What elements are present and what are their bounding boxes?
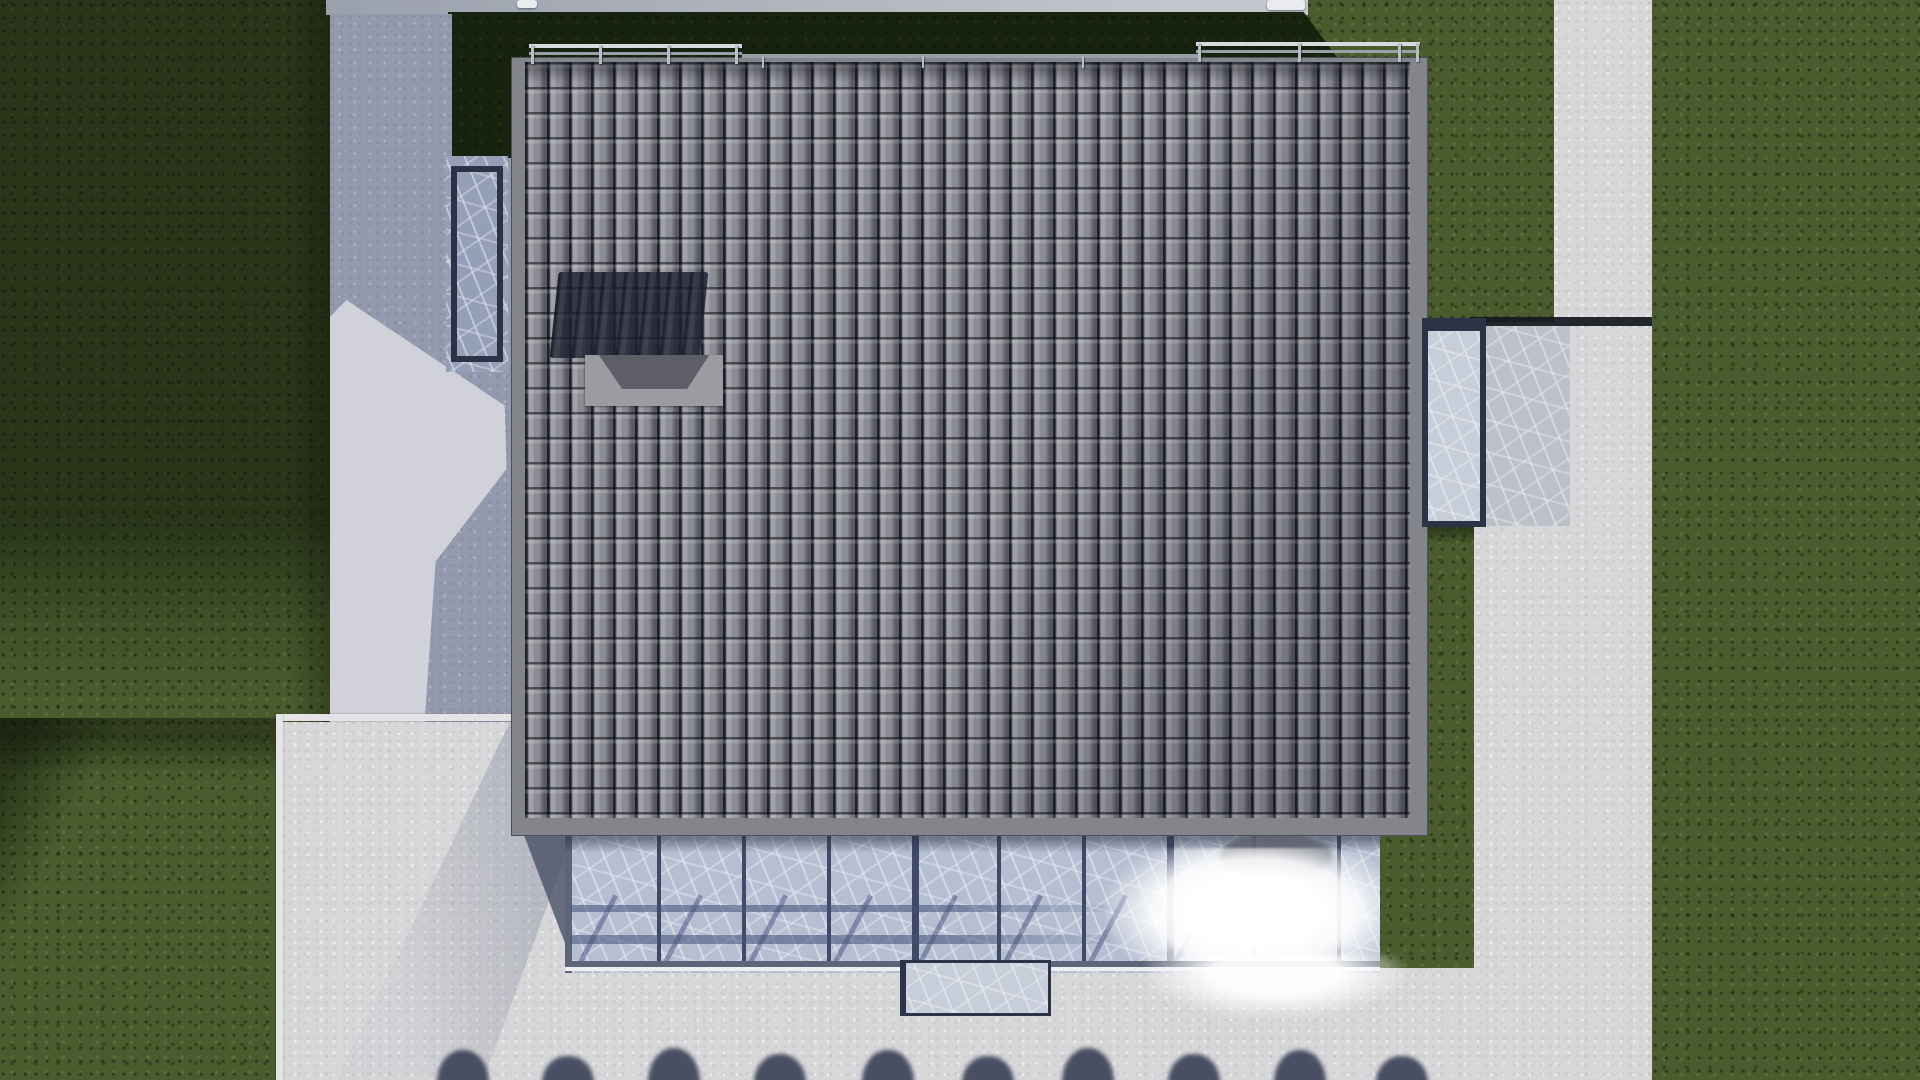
railing-post: [735, 45, 738, 64]
terrace-curb-vertical: [276, 714, 283, 1080]
chimney-box: [585, 355, 723, 406]
aerial-render-canvas: [0, 0, 1920, 1080]
terrace-curb-horizontal: [276, 714, 518, 721]
rooftop-vent-object-west: [517, 0, 537, 8]
railing-post: [599, 45, 602, 64]
railing-post: [531, 45, 534, 64]
railing-lower-bar: [1196, 50, 1420, 53]
shadow-line-east: [1470, 317, 1652, 326]
lawn-strip-east: [1428, 518, 1474, 852]
railing-post: [1198, 43, 1201, 62]
scene-root: [0, 0, 1920, 1080]
railing-middle-post: [762, 56, 764, 68]
railing-northwest: [529, 44, 742, 66]
railing-middle-line: [742, 54, 1198, 58]
railing-middle-post: [1082, 56, 1084, 68]
lawn-left-lower: [0, 718, 281, 1080]
lawn-left-upper: [0, 0, 352, 722]
railing-post: [667, 45, 670, 64]
lawn-notch-east: [1376, 836, 1474, 968]
chimney-top-face: [585, 355, 723, 389]
skylight-window-west: [446, 156, 508, 372]
house-roof: [512, 58, 1427, 835]
railing-post: [1416, 43, 1419, 62]
railing-northeast: [1196, 42, 1420, 64]
glass-walkway-east: [1422, 318, 1486, 527]
railing-lower-bar: [529, 52, 742, 55]
railing-middle-post: [922, 56, 924, 68]
railing-shadow-bar: [571, 905, 1131, 912]
railing-post: [1298, 43, 1301, 62]
lawn-right: [1652, 0, 1920, 1080]
roof-shading-overlay: [525, 62, 1410, 818]
rooftop-vent-object-east: [1267, 0, 1305, 10]
bay-window-south: [900, 960, 1051, 1016]
railing-top-bar: [1196, 42, 1420, 46]
glare-spill: [1145, 955, 1405, 1017]
skylight-window-west-frame: [451, 166, 503, 362]
railing-top-bar: [529, 44, 742, 48]
shadow-lawn-strip-west: [448, 12, 512, 162]
conservatory-canopy: [565, 833, 1380, 973]
chimney-cast-shadow: [549, 272, 708, 358]
railing-post: [1398, 43, 1401, 62]
